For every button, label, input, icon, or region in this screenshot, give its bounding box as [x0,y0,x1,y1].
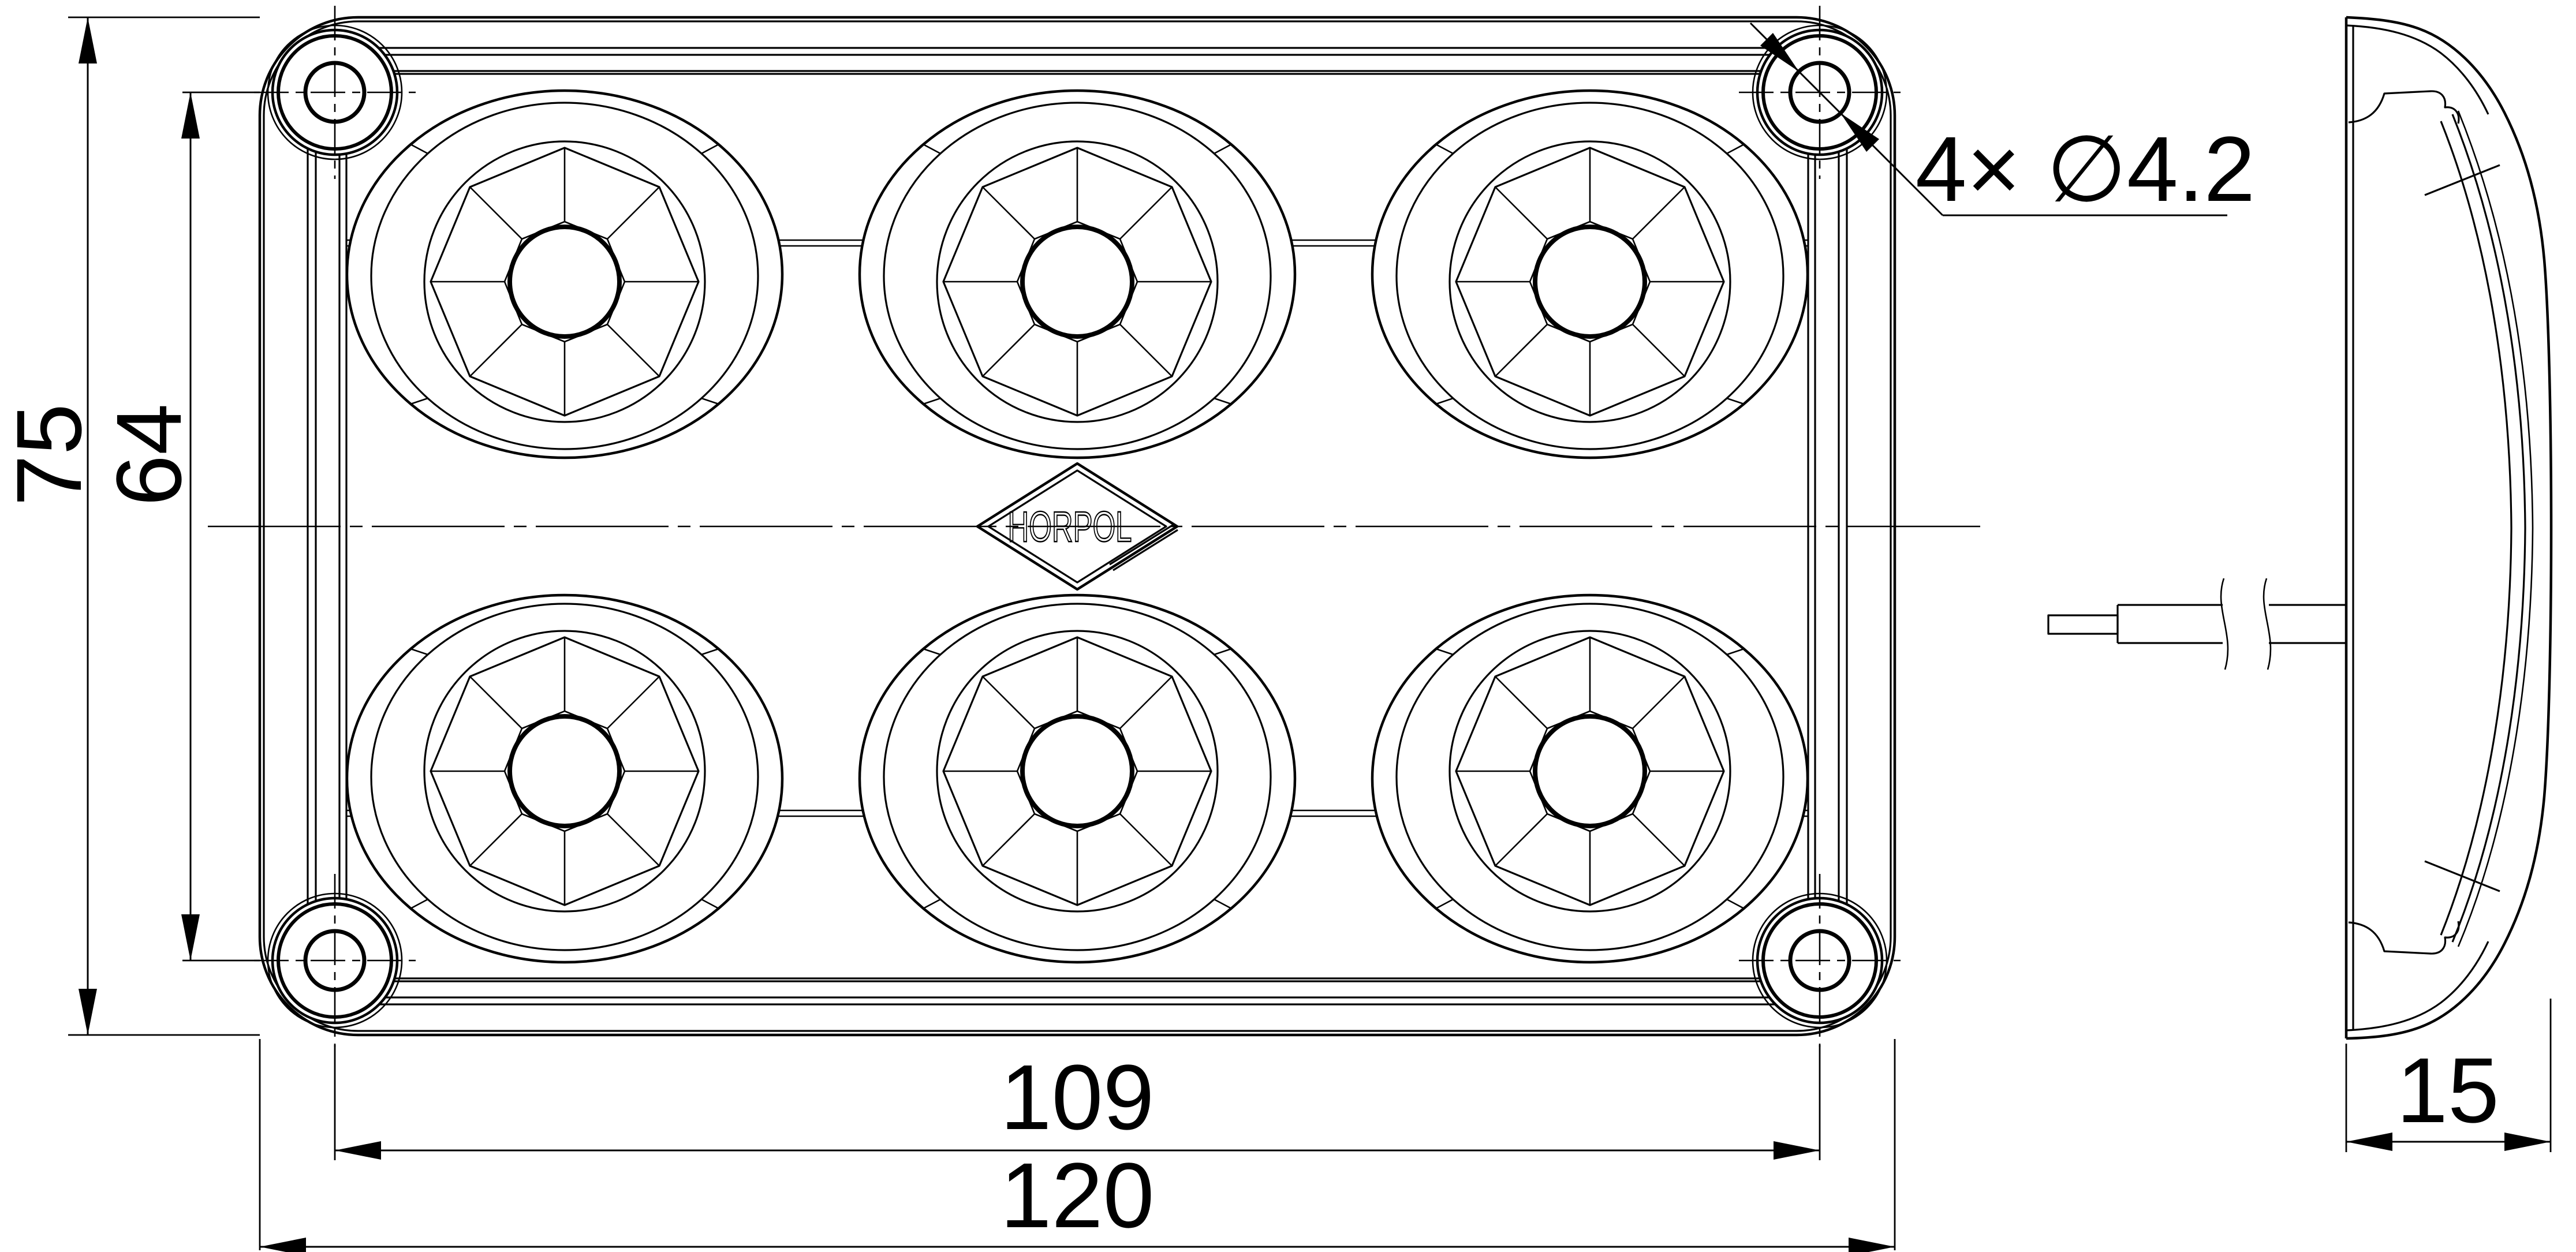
lens-bottom-middle [860,595,1295,962]
cable [2048,578,2346,670]
technical-drawing: HORPOL [0,0,2576,1252]
dimension-depth: 15 [2346,999,2551,1152]
dim-hole-spacing-h-label: 109 [1000,1045,1155,1149]
dimension-hole-spacing-horizontal: 109 [335,1045,1820,1160]
lens-top-middle [860,91,1295,458]
dim-depth-label: 15 [2396,1038,2499,1142]
lens-top-right [1372,91,1808,458]
front-view: HORPOL [208,6,1980,1047]
dim-hole-spacing-v-label: 64 [97,403,200,506]
lens-top-left [347,91,782,458]
lens-bottom-left [347,595,782,962]
drawing-sheet: HORPOL [0,0,2576,1252]
break-mark [2221,578,2228,670]
wire-stub [2048,615,2118,634]
lens-bottom-right [1372,595,1808,962]
logo-text: HORPOL [1008,503,1132,551]
callout-holes-label: 4× ∅4.2 [1916,117,2256,220]
profile-outline [2346,17,2551,1038]
break-mark [2264,578,2271,670]
dim-height-label: 75 [0,403,100,506]
dim-width-label: 120 [1000,1143,1155,1247]
